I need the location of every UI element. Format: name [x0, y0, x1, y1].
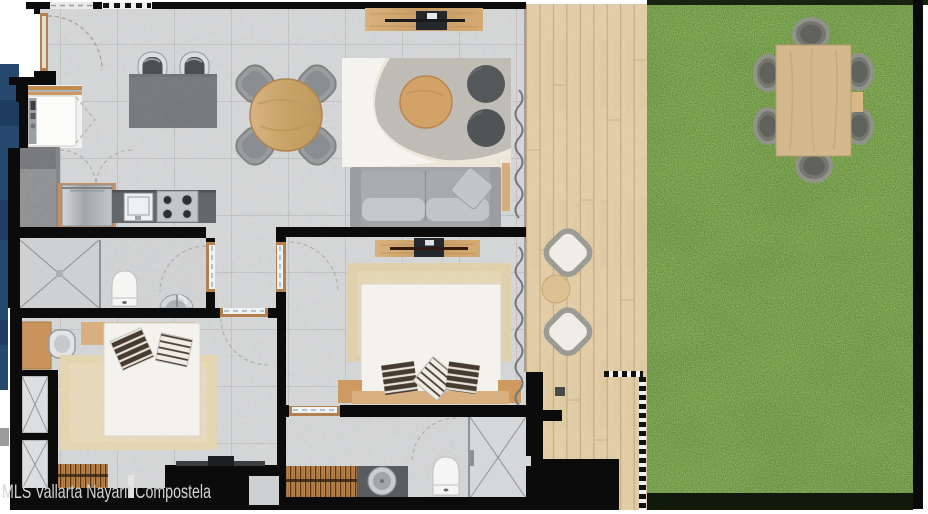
svg-text:MLS Vallarta Nayarit Compostel: MLS Vallarta Nayarit Compostela — [2, 481, 211, 503]
